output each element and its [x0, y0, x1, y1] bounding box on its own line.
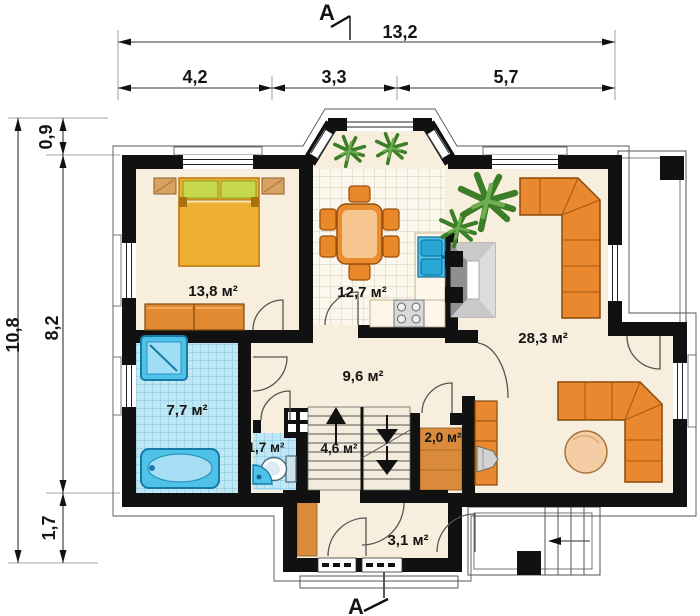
dim-total-width: 13,2 — [382, 22, 417, 42]
label-living-room: 28,3 м² — [518, 330, 567, 347]
label-hall: 9,6 м² — [342, 368, 383, 385]
chair — [349, 186, 370, 202]
dimension-lines-left — [8, 118, 120, 563]
terrace-steps-bottom-right — [468, 507, 600, 575]
section-label-top: A — [319, 0, 335, 25]
label-bedroom: 13,8 м² — [188, 283, 237, 300]
dim-height-seg-1: 0,9 — [36, 124, 56, 149]
window-bay-top — [342, 118, 418, 131]
steps-direction-arrow — [548, 537, 561, 545]
label-kitchen-dining: 12,7 м² — [337, 284, 386, 301]
terrace-right — [618, 151, 686, 348]
dim-total-height: 10,8 — [3, 317, 23, 352]
label-staircase: 4,6 м² — [321, 441, 359, 456]
shower — [141, 336, 187, 380]
chair — [383, 209, 399, 230]
dim-width-seg-2: 3,3 — [321, 67, 346, 87]
chair — [349, 264, 370, 280]
entry-porch — [300, 576, 458, 588]
double-bed — [179, 178, 259, 266]
tv-shelf — [475, 401, 497, 485]
porch-column — [517, 551, 541, 575]
window-bedroom-left — [113, 235, 136, 306]
bathtub — [141, 449, 219, 488]
window-living-right-upper — [608, 240, 622, 306]
round-table — [565, 431, 607, 473]
label-pantry: 2,0 м² — [425, 430, 463, 445]
dim-height-seg-3: 1,7 — [39, 515, 59, 540]
chair — [383, 236, 399, 257]
window-bedroom-top — [174, 147, 262, 169]
chair — [320, 236, 336, 257]
kitchen-sink — [418, 237, 445, 277]
section-marker-top: A — [319, 0, 350, 40]
section-label-bottom: A — [348, 594, 364, 616]
terrace-column — [660, 156, 684, 180]
label-bathroom: 7,7 м² — [166, 402, 207, 419]
dim-height-seg-2: 8,2 — [42, 315, 62, 340]
wardrobe — [145, 304, 244, 330]
window-living-right-lower — [673, 355, 696, 427]
window-bathroom-left — [113, 357, 136, 415]
floor-plan-svg: 13,2 4,2 3,3 5,7 10,8 0,9 8,2 1,7 A A — [0, 0, 700, 616]
dim-width-seg-1: 4,2 — [182, 67, 207, 87]
label-wc: 1,7 м² — [248, 440, 286, 455]
fireplace — [445, 243, 495, 317]
chair — [320, 209, 336, 230]
section-marker-bottom: A — [348, 572, 388, 616]
window-living-top — [483, 147, 567, 169]
label-vestibule: 3,1 м² — [387, 532, 428, 549]
stove — [394, 300, 424, 327]
floor-plan-drawing: 13,2 4,2 3,3 5,7 10,8 0,9 8,2 1,7 A A — [0, 0, 700, 616]
dim-width-seg-3: 5,7 — [493, 67, 518, 87]
pillow-left — [183, 181, 218, 198]
dimension-lines-top — [118, 30, 615, 100]
pillow-right — [221, 181, 256, 198]
blanket — [179, 200, 259, 266]
